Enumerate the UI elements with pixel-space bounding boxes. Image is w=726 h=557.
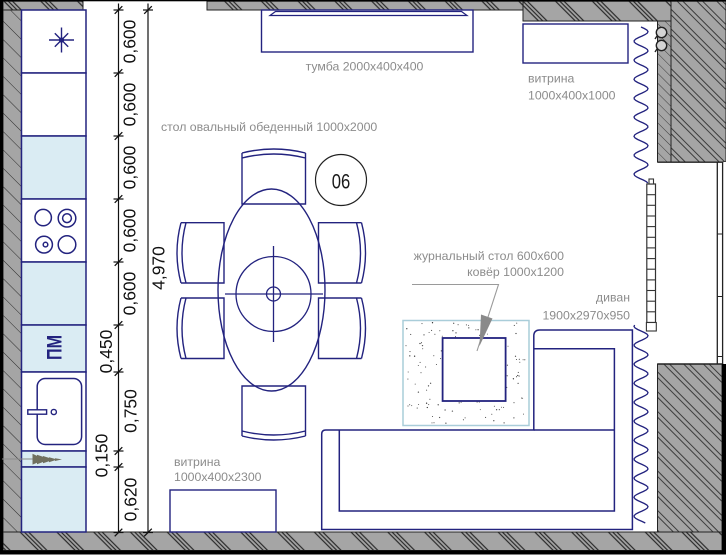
svg-text:0,600: 0,600	[120, 271, 140, 315]
svg-text:ПМ: ПМ	[44, 335, 67, 360]
svg-text:витрина: витрина	[174, 455, 221, 469]
svg-text:витрина: витрина	[528, 72, 575, 86]
svg-text:0,600: 0,600	[120, 19, 140, 63]
svg-text:0,600: 0,600	[120, 82, 140, 126]
svg-text:1000х400х2300: 1000х400х2300	[174, 470, 262, 484]
svg-text:0,600: 0,600	[120, 145, 140, 189]
svg-text:ковёр 1000х1200: ковёр 1000х1200	[467, 265, 564, 279]
svg-text:0,600: 0,600	[120, 208, 140, 252]
svg-text:диван: диван	[596, 291, 630, 305]
svg-text:4,970: 4,970	[149, 246, 169, 290]
svg-text:тумба 2000х400х400: тумба 2000х400х400	[306, 60, 424, 74]
svg-text:1000х400х1000: 1000х400х1000	[528, 89, 616, 103]
svg-text:0,450: 0,450	[96, 329, 116, 373]
svg-text:0,150: 0,150	[92, 433, 112, 477]
svg-text:журнальный стол 600х600: журнальный стол 600х600	[414, 249, 564, 263]
svg-text:06: 06	[332, 170, 351, 194]
svg-text:стол овальный обеденный 1000х2: стол овальный обеденный 1000х2000	[161, 120, 377, 134]
svg-text:1900х2970х950: 1900х2970х950	[542, 309, 630, 323]
svg-text:0,750: 0,750	[121, 389, 141, 433]
svg-text:0,620: 0,620	[121, 477, 141, 521]
